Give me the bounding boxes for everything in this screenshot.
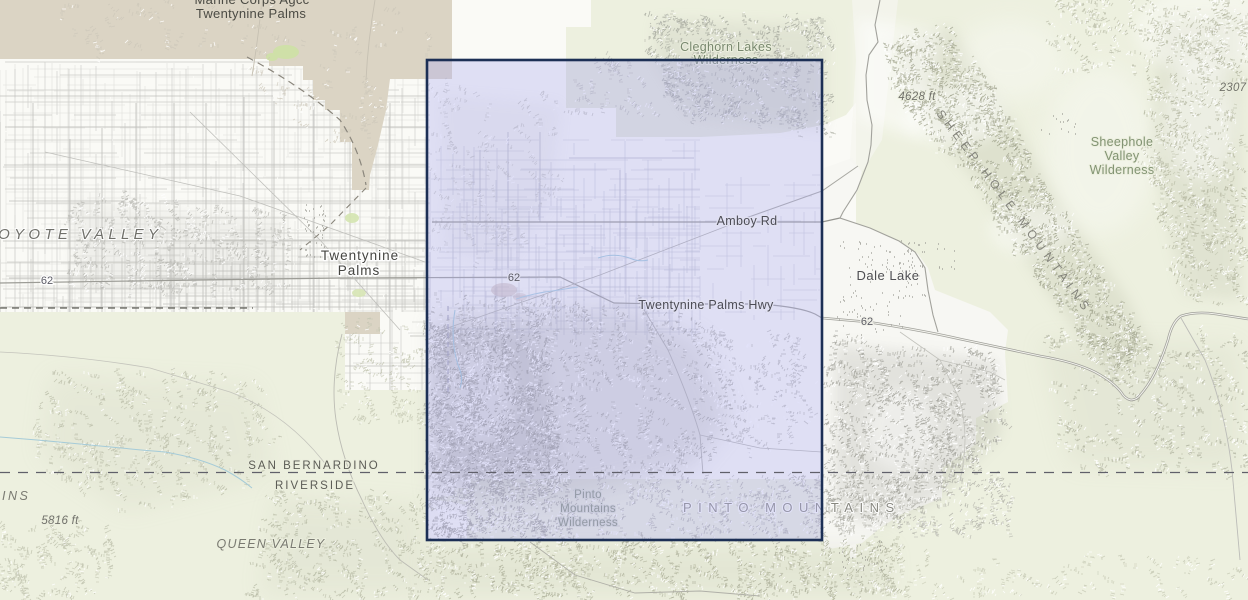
svg-text:Twentynine: Twentynine <box>321 248 399 263</box>
svg-text:SAN BERNARDINO: SAN BERNARDINO <box>248 460 380 472</box>
svg-text:Wilderness: Wilderness <box>1090 163 1155 177</box>
svg-text:QUEEN VALLEY: QUEEN VALLEY <box>217 537 326 551</box>
svg-text:Amboy Rd: Amboy Rd <box>717 214 778 228</box>
svg-text:5816 ft: 5816 ft <box>41 515 79 527</box>
svg-text:RIVERSIDE: RIVERSIDE <box>275 480 355 492</box>
svg-text:Dale Lake: Dale Lake <box>856 268 919 283</box>
svg-text:INS: INS <box>2 489 30 503</box>
svg-text:4628 ft: 4628 ft <box>898 91 936 103</box>
svg-text:62: 62 <box>508 272 520 284</box>
svg-text:Sheephole: Sheephole <box>1091 135 1153 149</box>
svg-text:Palms: Palms <box>338 263 381 278</box>
svg-text:Cleghorn Lakes: Cleghorn Lakes <box>680 40 772 54</box>
svg-text:COYOTE VALLEY: COYOTE VALLEY <box>0 226 162 243</box>
svg-text:Twentynine Palms: Twentynine Palms <box>196 6 306 21</box>
svg-text:62: 62 <box>41 275 53 287</box>
svg-text:Twentynine Palms Hwy: Twentynine Palms Hwy <box>638 298 774 312</box>
svg-text:Valley: Valley <box>1105 149 1140 163</box>
svg-text:62: 62 <box>861 316 873 328</box>
svg-text:2307: 2307 <box>1219 82 1247 94</box>
